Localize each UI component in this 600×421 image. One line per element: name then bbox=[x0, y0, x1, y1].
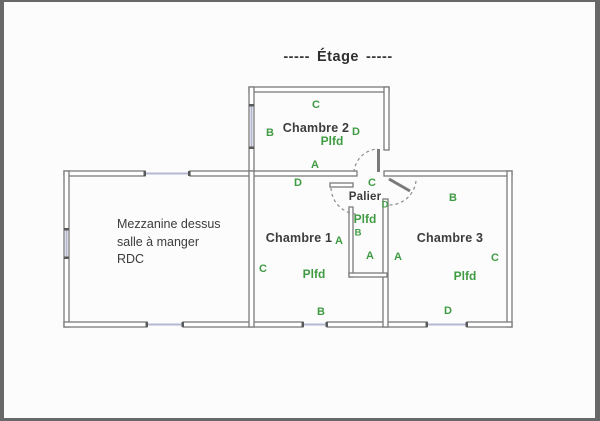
palier-name: Palier bbox=[349, 191, 382, 203]
window-tick bbox=[146, 322, 149, 327]
chambre3-marker-c: C bbox=[491, 252, 499, 264]
mezzanine-line1: Mezzanine dessus bbox=[117, 216, 221, 234]
wall-chambre2-top bbox=[249, 87, 389, 92]
wall-outer-right bbox=[507, 171, 512, 327]
chambre2-marker-a: A bbox=[311, 159, 319, 171]
chambre1-marker-a: A bbox=[335, 235, 343, 247]
window-tick bbox=[249, 147, 254, 150]
window-tick bbox=[466, 322, 469, 327]
wall-band-top-mid bbox=[190, 171, 357, 176]
palier-marker-d: D bbox=[382, 200, 389, 211]
chambre1-marker-c: C bbox=[259, 263, 267, 275]
wall-divider-chambre1-3 bbox=[383, 199, 388, 327]
palier-marker-c: C bbox=[368, 177, 376, 189]
chambre2-marker-b: B bbox=[266, 127, 274, 139]
floorplan: -----Étage----- bbox=[0, 0, 600, 421]
mezzanine-label: Mezzanine dessus salle à manger RDC bbox=[117, 216, 221, 269]
floorplan-svg bbox=[0, 0, 600, 421]
door-swing-chambre2 bbox=[354, 149, 378, 172]
wall-palier-stub bbox=[330, 183, 353, 187]
wall-stair-left bbox=[349, 207, 353, 277]
chambre3-marker-d: D bbox=[444, 305, 452, 317]
wall-bottom-4 bbox=[467, 322, 512, 327]
chambre2-name: Chambre 2 bbox=[283, 121, 349, 135]
chambre1-marker-b: B bbox=[317, 306, 325, 318]
palier-plfd-label: Plfd bbox=[354, 212, 377, 226]
window-tick bbox=[144, 171, 147, 176]
floorplan-page: -----Étage----- bbox=[0, 0, 600, 421]
chambre3-plfd-label: Plfd bbox=[454, 269, 477, 283]
chambre2-marker-c: C bbox=[312, 99, 320, 111]
door-leaf-chambre3 bbox=[389, 179, 410, 191]
wall-stair-bottom bbox=[349, 273, 387, 277]
wall-band-top-right bbox=[384, 171, 512, 176]
wall-mezzanine-right bbox=[249, 171, 254, 327]
chambre1-plfd-label: Plfd bbox=[303, 267, 326, 281]
window-tick bbox=[188, 171, 191, 176]
mezzanine-line3: RDC bbox=[117, 251, 221, 269]
wall-band-top-left bbox=[64, 171, 145, 176]
chambre2-plfd-label: Plfd bbox=[321, 134, 344, 148]
door-swing-chambre3 bbox=[389, 181, 416, 205]
window-tick bbox=[302, 322, 305, 327]
chambre1-name: Chambre 1 bbox=[266, 231, 332, 245]
window-tick bbox=[64, 228, 69, 231]
wall-bottom-3 bbox=[327, 322, 427, 327]
window-tick bbox=[182, 322, 185, 327]
chambre1-marker-d: D bbox=[294, 177, 302, 189]
window-tick bbox=[426, 322, 429, 327]
wall-bottom-1 bbox=[64, 322, 147, 327]
chambre2-marker-d: D bbox=[352, 126, 360, 138]
chambre3-marker-a: A bbox=[394, 251, 402, 263]
chambre3-name: Chambre 3 bbox=[417, 231, 483, 245]
window-tick bbox=[326, 322, 329, 327]
window-tick bbox=[64, 257, 69, 260]
window-tick bbox=[249, 104, 254, 107]
chambre3-marker-b: B bbox=[449, 192, 457, 204]
palier-marker-a: A bbox=[366, 250, 374, 262]
wall-chambre2-right bbox=[384, 87, 389, 150]
wall-bottom-2 bbox=[183, 322, 303, 327]
mezzanine-line2: salle à manger bbox=[117, 234, 221, 252]
palier-marker-b: B bbox=[355, 228, 362, 239]
